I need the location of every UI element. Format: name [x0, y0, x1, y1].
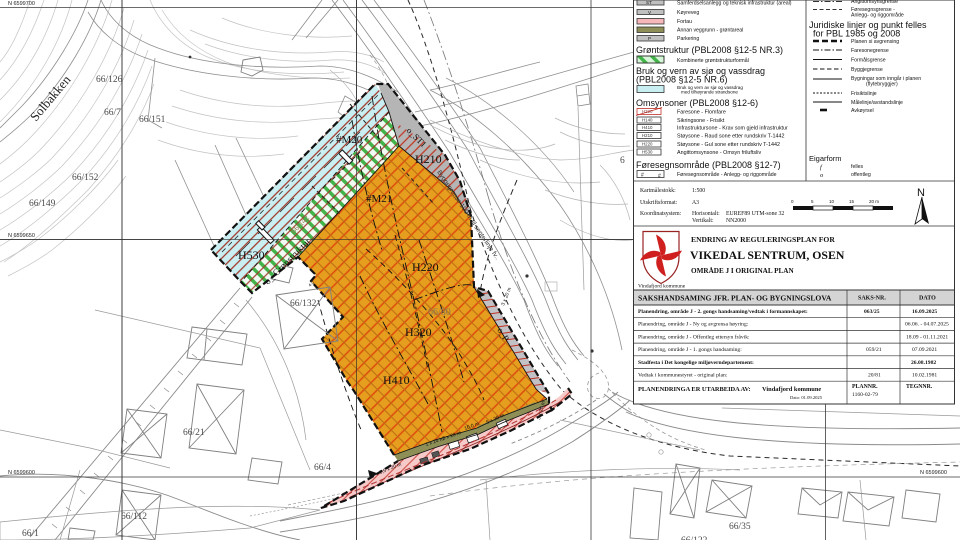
svg-text:(PBL2008 §12-5 NR.6): (PBL2008 §12-5 NR.6) — [636, 75, 728, 85]
svg-text:H210: H210 — [642, 133, 653, 138]
svg-text:Annan veggrunn - grøntareal: Annan veggrunn - grøntareal — [677, 28, 743, 34]
svg-text:SAKSHANDSAMING JFR. PLAN- OG B: SAKSHANDSAMING JFR. PLAN- OG BYGNINGSLOV… — [638, 294, 832, 303]
svg-text:H320: H320 — [405, 325, 432, 339]
svg-text:med tilhøyrande strandsone: med tilhøyrande strandsone — [681, 90, 738, 95]
svg-text:Kombinerte grøntstrukturformål: Kombinerte grøntstrukturformål — [677, 57, 749, 64]
svg-text:Byggjegrense: Byggjegrense — [851, 67, 883, 73]
svg-text:1:500: 1:500 — [692, 188, 705, 194]
svg-text:VIKEDAL SENTRUM, OSEN: VIKEDAL SENTRUM, OSEN — [690, 248, 845, 262]
svg-text:Planendring, område J - 2. gon: Planendring, område J - 2. gongs handsam… — [638, 308, 808, 315]
svg-text:Dato: 01.09.2025: Dato: 01.09.2025 — [790, 395, 823, 400]
svg-text:16.09.2025: 16.09.2025 — [912, 309, 937, 315]
svg-text:66/21: 66/21 — [183, 428, 205, 438]
svg-text:Planendring, område J - 1. gon: Planendring, område J - 1. gongs handsam… — [638, 346, 742, 353]
svg-text:N 6599600: N 6599600 — [920, 470, 947, 476]
svg-text:felles: felles — [851, 164, 864, 170]
svg-text:66/151: 66/151 — [139, 115, 166, 125]
svg-text:DATO: DATO — [919, 296, 936, 302]
svg-text:06.06. - 04.07.2025: 06.06. - 04.07.2025 — [905, 322, 949, 328]
svg-text:66/4: 66/4 — [314, 463, 331, 473]
svg-text:66/122: 66/122 — [681, 536, 708, 540]
svg-text:Omsynsoner (PBL2008 §12-6): Omsynsoner (PBL2008 §12-6) — [636, 98, 758, 108]
svg-text:H410: H410 — [642, 125, 653, 130]
svg-text:66/1: 66/1 — [22, 529, 39, 539]
svg-text:H530: H530 — [238, 248, 265, 262]
svg-text:H410: H410 — [383, 373, 410, 387]
svg-text:20 m: 20 m — [869, 199, 879, 204]
svg-text:TEGNNR.: TEGNNR. — [906, 384, 933, 390]
svg-text:EUREF89 UTM-sone 32: EUREF89 UTM-sone 32 — [726, 211, 784, 217]
svg-text:20/81: 20/81 — [868, 373, 881, 379]
svg-text:Føresegnsområde (PBL2008 §12-7: Føresegnsområde (PBL2008 §12-7) — [636, 160, 781, 170]
svg-text:66/35: 66/35 — [729, 522, 751, 532]
svg-text:Koordinatsystem:: Koordinatsystem: — [640, 211, 682, 217]
svg-text:Eigarform: Eigarform — [809, 154, 842, 163]
svg-text:Horisontalt:: Horisontalt: — [692, 211, 720, 217]
svg-text:6: 6 — [620, 156, 625, 166]
svg-text:Planen si avgrensing: Planen si avgrensing — [851, 39, 899, 45]
svg-text:PLANNR.: PLANNR. — [852, 384, 878, 390]
svg-text:Støysone - Raud sone etter run: Støysone - Raud sone etter rundskriv T-1… — [677, 134, 784, 140]
svg-text:PLANENDRINGA ER UTARBEIDA AV:: PLANENDRINGA ER UTARBEIDA AV: — [638, 386, 751, 393]
svg-text:Anlegg- og riggområde: Anlegg- og riggområde — [851, 12, 904, 19]
svg-text:66/132: 66/132 — [290, 299, 317, 309]
svg-text:66/7: 66/7 — [104, 108, 121, 118]
svg-text:Planendring, område J - Offent: Planendring, område J - Offentleg etters… — [638, 333, 750, 340]
svg-text:ST: ST — [646, 0, 652, 5]
svg-text:Sikringsone - Frisikt: Sikringsone - Frisikt — [677, 118, 725, 124]
svg-text:Avkøyrsel: Avkøyrsel — [851, 108, 874, 114]
svg-text:07.09.2021: 07.09.2021 — [912, 347, 937, 353]
svg-text:063/25: 063/25 — [864, 309, 880, 315]
svg-text:10.02.1981: 10.02.1981 — [912, 373, 937, 379]
svg-text:18.09 - 01.11.2021: 18.09 - 01.11.2021 — [906, 334, 948, 340]
svg-text:(flytebryggjer): (flytebryggjer) — [866, 82, 898, 88]
svg-text:OMRÅDE J I ORIGINAL PLAN: OMRÅDE J I ORIGINAL PLAN — [691, 266, 794, 275]
svg-text:ENDRING AV REGULERINGSPLAN FOR: ENDRING AV REGULERINGSPLAN FOR — [691, 235, 835, 244]
svg-text:Formålsgrense: Formålsgrense — [851, 57, 886, 64]
svg-text:Køyreveg: Køyreveg — [677, 10, 699, 16]
svg-text:Planendring, område J - Ny og: Planendring, område J - Ny og avgrensa h… — [638, 321, 749, 328]
svg-text:059/21: 059/21 — [866, 347, 882, 353]
svg-text:#: # — [658, 174, 661, 180]
svg-text:N: N — [917, 187, 925, 199]
svg-text:Frisiktslinje: Frisiktslinje — [851, 91, 877, 97]
svg-text:#M20: #M20 — [336, 134, 363, 146]
svg-text:Faresonegrense: Faresonegrense — [851, 48, 889, 54]
svg-text:P: P — [648, 36, 651, 41]
svg-text:NN2000: NN2000 — [726, 218, 746, 224]
svg-text:Angittomsynsgrense: Angittomsynsgrense — [851, 0, 898, 5]
svg-text:H320: H320 — [642, 109, 653, 114]
svg-text:Grøntstruktur (PBL2008 §12-5 N: Grøntstruktur (PBL2008 §12-5 NR.3) — [636, 45, 783, 55]
svg-text:66/80: 66/80 — [428, 307, 451, 318]
svg-text:66/126: 66/126 — [96, 75, 123, 85]
svg-text:Faresone - Flomfare: Faresone - Flomfare — [677, 110, 726, 116]
svg-text:N 6599650: N 6599650 — [8, 233, 35, 239]
svg-text:Stadfesta i Det kongelige milj: Stadfesta i Det kongelige miljøverndepar… — [638, 360, 754, 366]
svg-text:26.08.1982: 26.08.1982 — [911, 360, 936, 366]
svg-text:#: # — [641, 173, 644, 179]
svg-text:N 6599700: N 6599700 — [8, 1, 35, 7]
svg-text:Fortau: Fortau — [677, 19, 692, 25]
svg-text:66/112: 66/112 — [121, 512, 147, 522]
svg-text:Målelinje/avstandslinje: Målelinje/avstandslinje — [851, 99, 903, 106]
svg-text:10: 10 — [829, 199, 835, 204]
svg-text:for PBL 1985 og 2008: for PBL 1985 og 2008 — [813, 29, 900, 39]
svg-text:Vindafjord kommune: Vindafjord kommune — [762, 386, 821, 393]
svg-text:H530: H530 — [642, 150, 653, 155]
svg-text:Infrastruktursone - Krav som g: Infrastruktursone - Krav som gjeld infra… — [677, 126, 788, 132]
svg-text:66/149: 66/149 — [29, 199, 56, 209]
svg-text:Vindafjord kommune: Vindafjord kommune — [638, 283, 686, 290]
svg-text:H220: H220 — [412, 260, 439, 274]
svg-text:#M21: #M21 — [366, 193, 392, 205]
svg-text:Samferdselsanlegg og teknisk i: Samferdselsanlegg og teknisk infrastrukt… — [677, 1, 792, 7]
svg-text:H210: H210 — [415, 152, 442, 166]
svg-text:SAKS-NR.: SAKS-NR. — [858, 296, 886, 302]
svg-text:A3: A3 — [692, 200, 699, 206]
svg-text:H220: H220 — [642, 142, 653, 147]
svg-text:Vedtak i kommunestyret - origi: Vedtak i kommunestyret - original plan: — [638, 373, 728, 379]
svg-text:Angittomsynsone - Omsyn friluf: Angittomsynsone - Omsyn friluftsliv — [677, 150, 761, 156]
svg-text:Parkering: Parkering — [677, 36, 699, 42]
svg-text:Føresegnsområde - Anlegg- og r: Føresegnsområde - Anlegg- og riggområde — [677, 171, 777, 178]
svg-text:1160-02-79: 1160-02-79 — [852, 392, 878, 398]
svg-text:15: 15 — [849, 199, 855, 204]
svg-text:N 6599600: N 6599600 — [8, 470, 35, 476]
svg-text:Kartmålestokk:: Kartmålestokk: — [640, 187, 676, 194]
svg-text:Utskriftsformat:: Utskriftsformat: — [640, 199, 678, 206]
svg-text:Vertikalt:: Vertikalt: — [692, 218, 714, 224]
svg-text:66/152: 66/152 — [72, 173, 99, 183]
svg-text:H140: H140 — [642, 118, 653, 123]
svg-text:Støysone - Gul sone etter rund: Støysone - Gul sone etter rundskriv T-14… — [677, 142, 780, 148]
svg-text:offentleg: offentleg — [851, 172, 871, 178]
